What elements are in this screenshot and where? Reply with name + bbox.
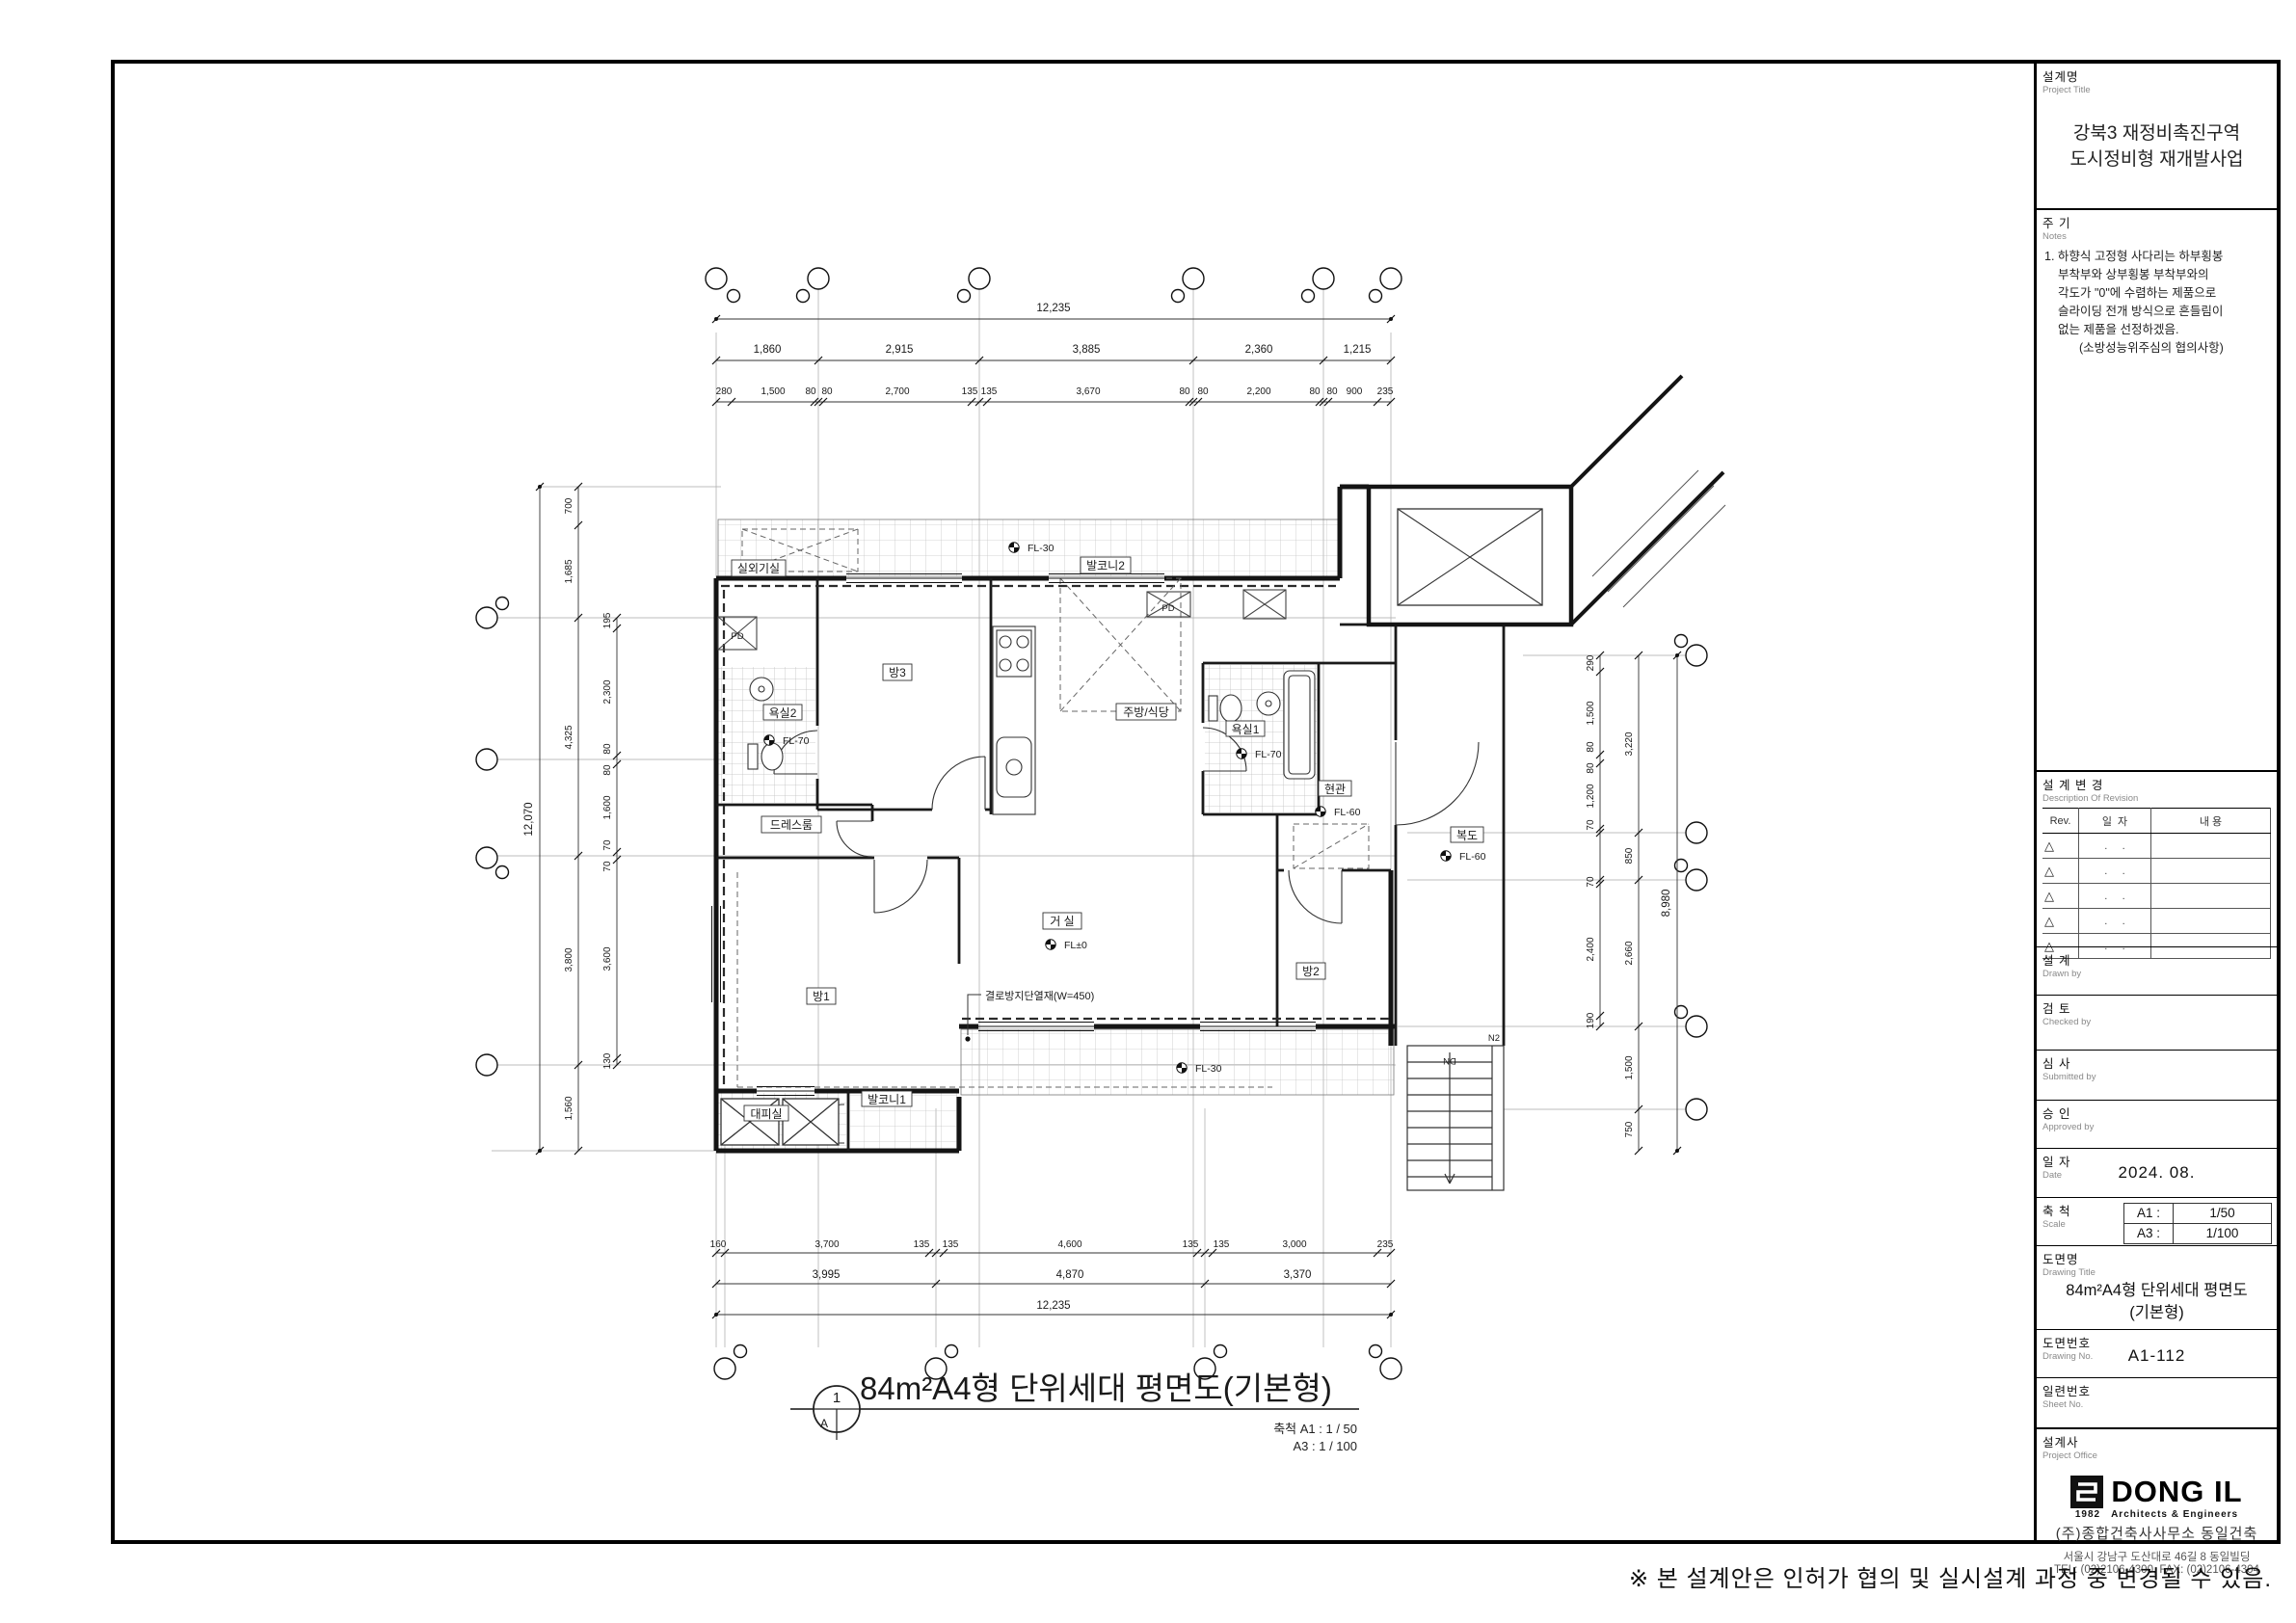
dim-label: 750 bbox=[1624, 1121, 1635, 1137]
room-label: 발코니2 bbox=[1086, 559, 1125, 572]
stairs bbox=[1407, 1046, 1504, 1190]
dimension-lines bbox=[540, 319, 1677, 1315]
approved-label-en: Approved by bbox=[2042, 1122, 2271, 1132]
dim-label: 80 bbox=[805, 386, 816, 397]
office-label-en: Project Office bbox=[2042, 1450, 2271, 1461]
dimension-ticks bbox=[536, 315, 1681, 1318]
room-label: 복도 bbox=[1456, 829, 1478, 842]
room-label: 방3 bbox=[889, 666, 906, 679]
revision-desc bbox=[2151, 834, 2271, 859]
note-line: 슬라이딩 전개 방식으로 흔들림이 bbox=[2042, 303, 2271, 321]
dim-label: 70 bbox=[1586, 876, 1596, 888]
drawing-title-line1: 84m²A4형 단위세대 평면도 bbox=[2042, 1280, 2271, 1302]
dim-label: 8,980 bbox=[1661, 890, 1672, 918]
plan-scale-a3: A3 : 1 / 100 bbox=[1294, 1439, 1358, 1453]
dim-label: 3,885 bbox=[1073, 344, 1101, 356]
pd-label: PD bbox=[1161, 603, 1174, 614]
titleblock-drawing-title: 도면명 Drawing Title 84m²A4형 단위세대 평면도 (기본형) bbox=[2037, 1245, 2277, 1329]
pd-shafts bbox=[718, 590, 1286, 650]
revision-date: . . bbox=[2079, 859, 2151, 884]
dim-label: 2,700 bbox=[885, 386, 909, 397]
note-line: 부착부와 상부횡봉 부착부와의 bbox=[2042, 266, 2271, 284]
revision-row: △. . bbox=[2042, 884, 2271, 909]
revision-symbol: △ bbox=[2042, 909, 2079, 934]
insulation-text: 결로방지단열재(W=450) bbox=[985, 990, 1094, 1002]
dim-label: 3,700 bbox=[814, 1239, 839, 1250]
revision-col-desc: 내 용 bbox=[2151, 809, 2271, 834]
date-value: 2024. 08. bbox=[2042, 1163, 2271, 1183]
dim-label: 80 bbox=[602, 743, 613, 755]
titleblock-office: 설계사 Project Office DONG IL 1982 Architec… bbox=[2037, 1427, 2277, 1540]
revision-col-rev: Rev. bbox=[2042, 809, 2079, 834]
revision-date: . . bbox=[2079, 909, 2151, 934]
dim-label: 1,500 bbox=[1624, 1055, 1635, 1079]
dim-label: 135 bbox=[943, 1239, 959, 1250]
revision-label-en: Description Of Revision bbox=[2042, 793, 2271, 804]
room-label: 실외기실 bbox=[737, 562, 780, 575]
fl-label: FL-70 bbox=[1255, 749, 1282, 760]
dim-label: 1,600 bbox=[602, 795, 613, 819]
titleblock-approved: 승 인 Approved by bbox=[2037, 1100, 2277, 1148]
dim-label: 12,235 bbox=[1036, 303, 1070, 314]
fl-label: FL±0 bbox=[1064, 940, 1087, 951]
title-block: 설계명 Project Title 강북3 재정비촉진구역 도시정비형 재개발사… bbox=[2034, 60, 2281, 1544]
footer-disclaimer: ※ 본 설계안은 인허가 협의 및 실시설계 과정 중 변경될 수 있음. bbox=[1629, 1559, 2272, 1593]
tile-areas bbox=[718, 519, 1394, 1149]
scale-a3-value: 1/100 bbox=[2174, 1224, 2271, 1243]
project-title: 강북3 재정비촉진구역 도시정비형 재개발사업 bbox=[2042, 120, 2271, 173]
project-title-line2: 도시정비형 재개발사업 bbox=[2042, 146, 2271, 173]
dim-label: 135 bbox=[914, 1239, 930, 1250]
dim-label: 70 bbox=[1586, 819, 1596, 831]
construction-lines bbox=[492, 289, 1687, 1347]
note-line: 1. 하향식 고정형 사다리는 하부횡봉 bbox=[2042, 248, 2271, 266]
revision-col-date: 일 자 bbox=[2079, 809, 2151, 834]
fl-label: FL-60 bbox=[1459, 851, 1486, 863]
dim-label: 850 bbox=[1624, 847, 1635, 864]
revision-symbol: △ bbox=[2042, 859, 2079, 884]
dim-label: 80 bbox=[602, 764, 613, 776]
scale-row-a3: A3 : 1/100 bbox=[2124, 1223, 2271, 1243]
titleblock-drawn: 설 계 Drawn by bbox=[2037, 946, 2277, 995]
pd-label: PD bbox=[731, 631, 743, 642]
revision-label-ko: 설 계 변 경 bbox=[2042, 775, 2271, 793]
scale-row-a1: A1 : 1/50 bbox=[2124, 1204, 2271, 1223]
dim-label: 4,325 bbox=[564, 725, 574, 749]
dim-label: 2,400 bbox=[1586, 937, 1596, 961]
note-line: 없는 제품을 선정하겠음. bbox=[2042, 321, 2271, 339]
room-label: 욕실1 bbox=[1232, 723, 1260, 736]
dim-label: 160 bbox=[710, 1239, 727, 1250]
dimension-text-top: 12,235 1,860 2,915 3,885 2,360 1,215 280… bbox=[716, 303, 1394, 397]
dim-label: 80 bbox=[1179, 386, 1190, 397]
dim-label: 235 bbox=[1377, 1239, 1394, 1250]
kitchen-fixtures bbox=[993, 626, 1035, 814]
elevator-core bbox=[1369, 376, 1725, 625]
checked-label-en: Checked by bbox=[2042, 1017, 2271, 1027]
room-label: 대피실 bbox=[750, 1107, 782, 1121]
drawn-label-ko: 설 계 bbox=[2042, 950, 2271, 969]
dim-label: 1,500 bbox=[1586, 701, 1596, 725]
room-label: 발코니1 bbox=[868, 1093, 906, 1106]
submitted-label-en: Submitted by bbox=[2042, 1072, 2271, 1082]
sheetno-label-ko: 일련번호 bbox=[2042, 1381, 2271, 1399]
plan-scale-a1: 축척 A1 : 1 / 50 bbox=[1273, 1422, 1357, 1436]
dimension-text-left: 12,070 700 1,685 4,325 3,800 1,560 195 2… bbox=[523, 497, 613, 1120]
fl-label: FL-30 bbox=[1028, 543, 1055, 554]
revision-date: . . bbox=[2079, 884, 2151, 909]
dim-label: 3,995 bbox=[813, 1269, 841, 1281]
room-label: 주방/식당 bbox=[1123, 705, 1169, 719]
drawing-title-line2: (기본형) bbox=[2042, 1302, 2271, 1324]
dim-label: 900 bbox=[1347, 386, 1363, 397]
titleblock-revision: 설 계 변 경 Description Of Revision Rev. 일 자… bbox=[2037, 770, 2277, 946]
dim-label: 3,220 bbox=[1624, 732, 1635, 756]
dim-label: 195 bbox=[602, 612, 613, 628]
scale-a3-key: A3 : bbox=[2124, 1224, 2174, 1243]
dim-label: 80 bbox=[1326, 386, 1338, 397]
dim-label: 80 bbox=[1309, 386, 1321, 397]
dongil-year: 1982 bbox=[2075, 1509, 2100, 1520]
fl-label: FL-70 bbox=[783, 735, 810, 747]
revision-row: △. . bbox=[2042, 834, 2271, 859]
note-line: (소방성능위주심의 협의사항) bbox=[2042, 339, 2271, 358]
revision-header-row: Rev. 일 자 내 용 bbox=[2042, 809, 2271, 834]
dim-label: 700 bbox=[564, 497, 574, 514]
titleblock-project: 설계명 Project Title 강북3 재정비촉진구역 도시정비형 재개발사… bbox=[2037, 64, 2277, 208]
dim-label: 70 bbox=[602, 839, 613, 851]
titleblock-submitted: 심 사 Submitted by bbox=[2037, 1050, 2277, 1100]
insulation-dashes bbox=[721, 586, 1391, 1087]
checked-label-ko: 검 토 bbox=[2042, 998, 2271, 1017]
approved-label-ko: 승 인 bbox=[2042, 1104, 2271, 1122]
detail-number: 1 bbox=[833, 1390, 841, 1406]
dim-label: 80 bbox=[1586, 762, 1596, 774]
dim-label: 235 bbox=[1377, 386, 1394, 397]
room-label: 방2 bbox=[1302, 965, 1320, 978]
sheetno-label-en: Sheet No. bbox=[2042, 1399, 2271, 1410]
dim-label: 1,860 bbox=[754, 344, 782, 356]
drawn-label-en: Drawn by bbox=[2042, 969, 2271, 979]
titleblock-checked: 검 토 Checked by bbox=[2037, 995, 2277, 1050]
revision-desc bbox=[2151, 909, 2271, 934]
titleblock-notes: 주 기 Notes 1. 하향식 고정형 사다리는 하부횡봉 부착부와 상부횡봉… bbox=[2037, 208, 2277, 770]
dim-label: 1,500 bbox=[761, 386, 785, 397]
dim-label: 190 bbox=[1586, 1012, 1596, 1028]
notes-label-en: Notes bbox=[2042, 231, 2271, 242]
dim-label: 80 bbox=[1586, 741, 1596, 753]
room-label: 욕실2 bbox=[769, 706, 797, 720]
dim-label: 1,685 bbox=[564, 559, 574, 583]
dim-label: 280 bbox=[716, 386, 733, 397]
room-label: 현관 bbox=[1324, 783, 1346, 796]
notes-label-ko: 주 기 bbox=[2042, 213, 2271, 231]
room-label: 드레스룸 bbox=[770, 818, 813, 832]
revision-symbol: △ bbox=[2042, 834, 2079, 859]
drawing-sheet: 12,235 1,860 2,915 3,885 2,360 1,215 280… bbox=[0, 0, 2296, 1623]
revision-table: Rev. 일 자 내 용 △. . △. . △. . △. . △. . bbox=[2042, 808, 2271, 959]
room-label: 거 실 bbox=[1050, 915, 1074, 928]
titleblock-date: 일 자 Date 2024. 08. bbox=[2037, 1148, 2277, 1197]
dim-label: 2,360 bbox=[1245, 344, 1273, 356]
notes-text: 1. 하향식 고정형 사다리는 하부횡봉 부착부와 상부횡봉 부착부와의 각도가… bbox=[2042, 248, 2271, 358]
n2-label: N2 bbox=[1488, 1033, 1500, 1044]
dim-label: 1,560 bbox=[564, 1096, 574, 1120]
dwgtitle-label-ko: 도면명 bbox=[2042, 1249, 2271, 1267]
revision-row: △. . bbox=[2042, 859, 2271, 884]
dim-label: 2,660 bbox=[1624, 941, 1635, 965]
room-label: 방1 bbox=[813, 990, 830, 1003]
scale-a1-value: 1/50 bbox=[2174, 1204, 2271, 1223]
plan-title-group: 1 A 84m²A4형 단위세대 평면도(기본형) 축척 A1 : 1 / 50… bbox=[790, 1370, 1359, 1453]
plan-title: 84m²A4형 단위세대 평면도(기본형) bbox=[860, 1370, 1332, 1406]
dim-label: 4,870 bbox=[1056, 1269, 1084, 1281]
project-title-line1: 강북3 재정비촉진구역 bbox=[2042, 120, 2271, 146]
dim-label: 80 bbox=[821, 386, 833, 397]
dongil-tagline: 1982 Architects & Engineers bbox=[2042, 1509, 2271, 1520]
revision-symbol: △ bbox=[2042, 884, 2079, 909]
dim-label: 135 bbox=[1214, 1239, 1230, 1250]
revision-date: . . bbox=[2079, 834, 2151, 859]
dim-end-dots bbox=[538, 317, 1679, 1317]
titleblock-scale: 축 척 Scale A1 : 1/50 A3 : 1/100 bbox=[2037, 1197, 2277, 1245]
dim-label: 290 bbox=[1586, 654, 1596, 671]
dim-label: 135 bbox=[1183, 1239, 1199, 1250]
dim-label: 3,600 bbox=[602, 946, 613, 971]
dim-label: 80 bbox=[1197, 386, 1209, 397]
dn-label: DN bbox=[1443, 1055, 1456, 1066]
drawing-title-value: 84m²A4형 단위세대 평면도 (기본형) bbox=[2042, 1280, 2271, 1324]
dwgtitle-label-en: Drawing Title bbox=[2042, 1267, 2271, 1278]
dim-label: 3,800 bbox=[564, 947, 574, 971]
revision-desc bbox=[2151, 884, 2271, 909]
fl-label: FL-30 bbox=[1195, 1063, 1222, 1075]
windows bbox=[712, 574, 1317, 1096]
dim-label: 2,915 bbox=[886, 344, 914, 356]
detail-letter: A bbox=[820, 1417, 828, 1430]
dongil-logo: DONG IL bbox=[2042, 1475, 2271, 1509]
dim-label: 3,370 bbox=[1284, 1269, 1312, 1281]
revision-row: △. . bbox=[2042, 909, 2271, 934]
office-name: (주)종합건축사사무소 동일건축 bbox=[2042, 1523, 2271, 1543]
dongil-logo-text: DONG IL bbox=[2111, 1475, 2242, 1509]
scale-table: A1 : 1/50 A3 : 1/100 bbox=[2123, 1203, 2272, 1244]
dim-label: 3,670 bbox=[1076, 386, 1100, 397]
dim-label: 1,200 bbox=[1586, 784, 1596, 808]
dim-label: 70 bbox=[602, 861, 613, 872]
titleblock-drawing-no: 도면번호 Drawing No. A1-112 bbox=[2037, 1329, 2277, 1377]
scale-a1-key: A1 : bbox=[2124, 1204, 2174, 1223]
dim-label: 12,235 bbox=[1036, 1300, 1070, 1312]
dim-label: 130 bbox=[602, 1052, 613, 1069]
dongil-tagline-text: Architects & Engineers bbox=[2111, 1509, 2238, 1520]
project-label-ko: 설계명 bbox=[2042, 67, 2271, 85]
revision-desc bbox=[2151, 859, 2271, 884]
titleblock-sheet-no: 일련번호 Sheet No. bbox=[2037, 1377, 2277, 1427]
dim-label: 1,215 bbox=[1344, 344, 1372, 356]
grid-bubbles bbox=[476, 268, 1707, 1379]
office-label-ko: 설계사 bbox=[2042, 1432, 2271, 1450]
dim-label: 135 bbox=[962, 386, 978, 397]
fl-label: FL-60 bbox=[1334, 807, 1361, 818]
dim-label: 3,000 bbox=[1282, 1239, 1306, 1250]
note-line: 각도가 "0"에 수렴하는 제품으로 bbox=[2042, 284, 2271, 303]
dim-label: 135 bbox=[981, 386, 998, 397]
floor-plan-drawing: 12,235 1,860 2,915 3,885 2,360 1,215 280… bbox=[0, 0, 2296, 1623]
submitted-label-ko: 심 사 bbox=[2042, 1053, 2271, 1072]
dimension-text-right: 290 1,500 80 80 1,200 70 70 2,400 190 3,… bbox=[1586, 654, 1672, 1137]
dim-label: 2,200 bbox=[1246, 386, 1270, 397]
dim-label: 12,070 bbox=[523, 802, 535, 836]
dim-label: 4,600 bbox=[1057, 1239, 1081, 1250]
dimension-text-bottom: 160 3,700 135 135 4,600 135 135 3,000 23… bbox=[710, 1239, 1394, 1312]
project-label-en: Project Title bbox=[2042, 85, 2271, 95]
dim-label: 2,300 bbox=[602, 679, 613, 704]
dongil-logo-mark bbox=[2070, 1476, 2103, 1508]
